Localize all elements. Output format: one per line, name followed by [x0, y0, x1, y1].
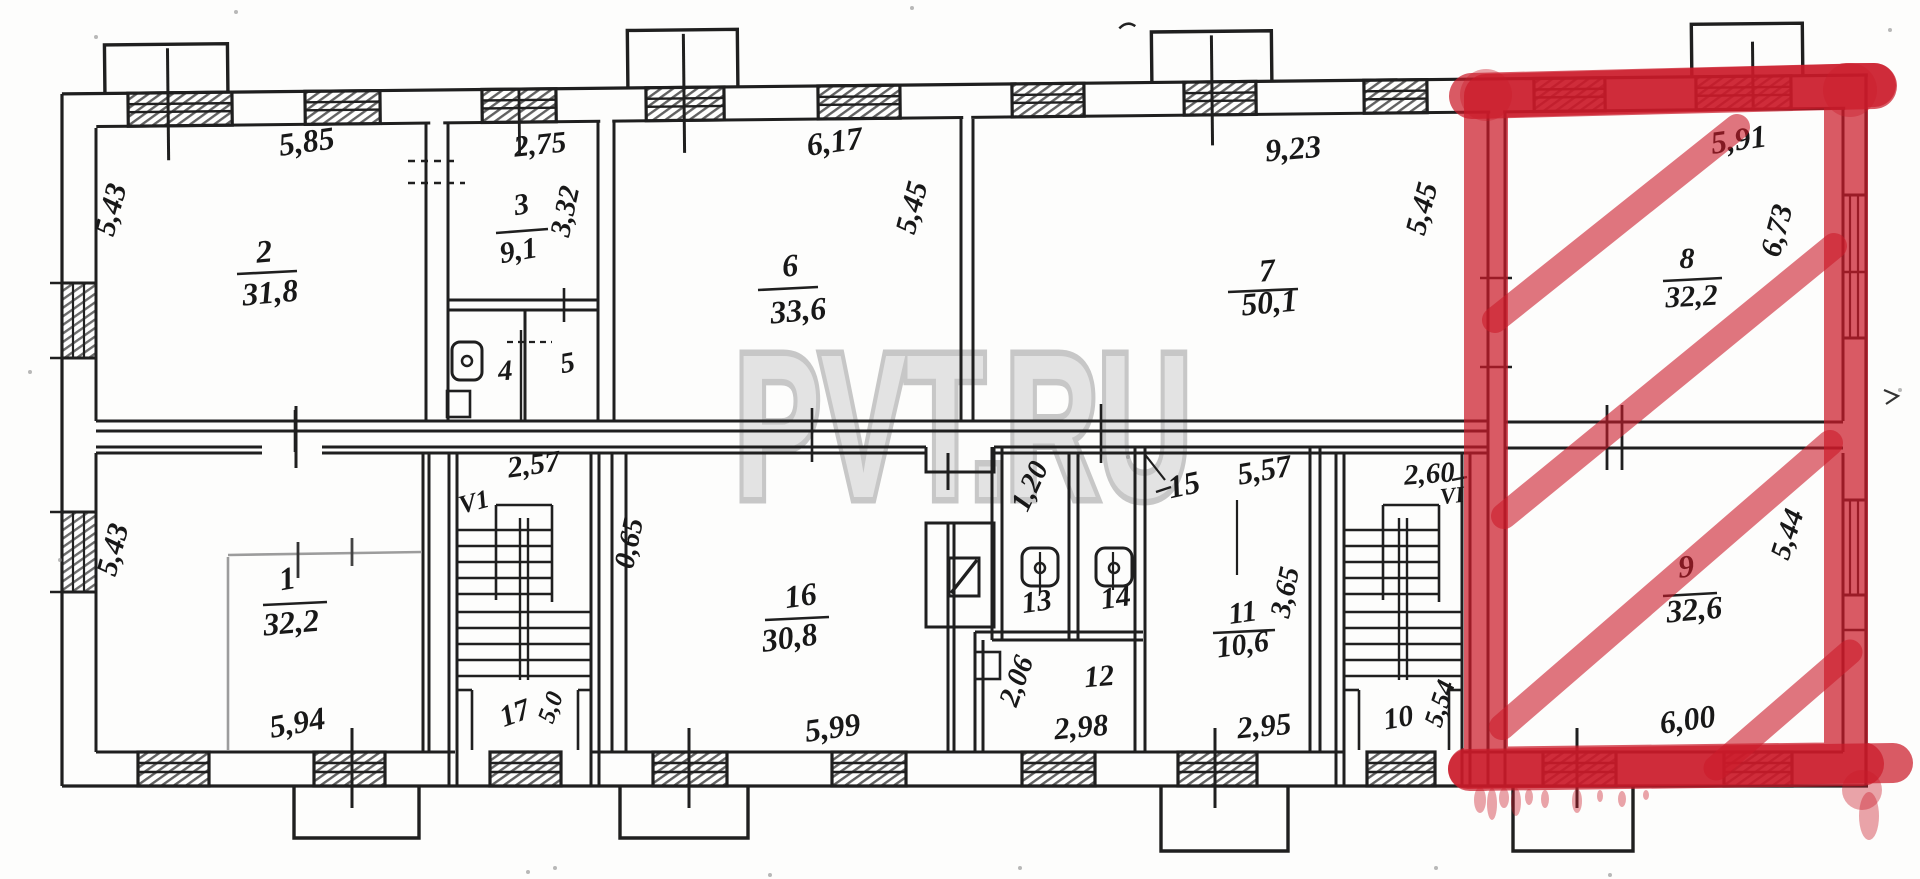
svg-text:14: 14	[1099, 579, 1133, 616]
svg-text:13: 13	[1020, 583, 1054, 620]
svg-text:12: 12	[1083, 659, 1116, 694]
svg-text:9,23: 9,23	[1264, 128, 1323, 169]
svg-text:2,98: 2,98	[1052, 707, 1111, 747]
svg-text:PVT.RU: PVT.RU	[735, 312, 1191, 541]
svg-text:2,95: 2,95	[1235, 706, 1293, 746]
svg-text:10: 10	[1381, 699, 1416, 737]
svg-text:8: 8	[1680, 242, 1695, 275]
svg-text:32,2: 32,2	[261, 602, 321, 643]
svg-text:4: 4	[496, 354, 514, 387]
svg-text:6: 6	[781, 246, 800, 283]
svg-text:31,8: 31,8	[240, 272, 300, 313]
svg-text:2,75: 2,75	[511, 125, 568, 163]
svg-text:16: 16	[782, 575, 819, 615]
svg-text:33,6: 33,6	[768, 290, 828, 331]
svg-text:32,2: 32,2	[1663, 279, 1718, 315]
svg-text:VI: VI	[1439, 482, 1467, 510]
svg-text:9,1: 9,1	[497, 231, 540, 270]
svg-text:50,1: 50,1	[1240, 282, 1299, 323]
svg-text:2: 2	[254, 232, 274, 269]
